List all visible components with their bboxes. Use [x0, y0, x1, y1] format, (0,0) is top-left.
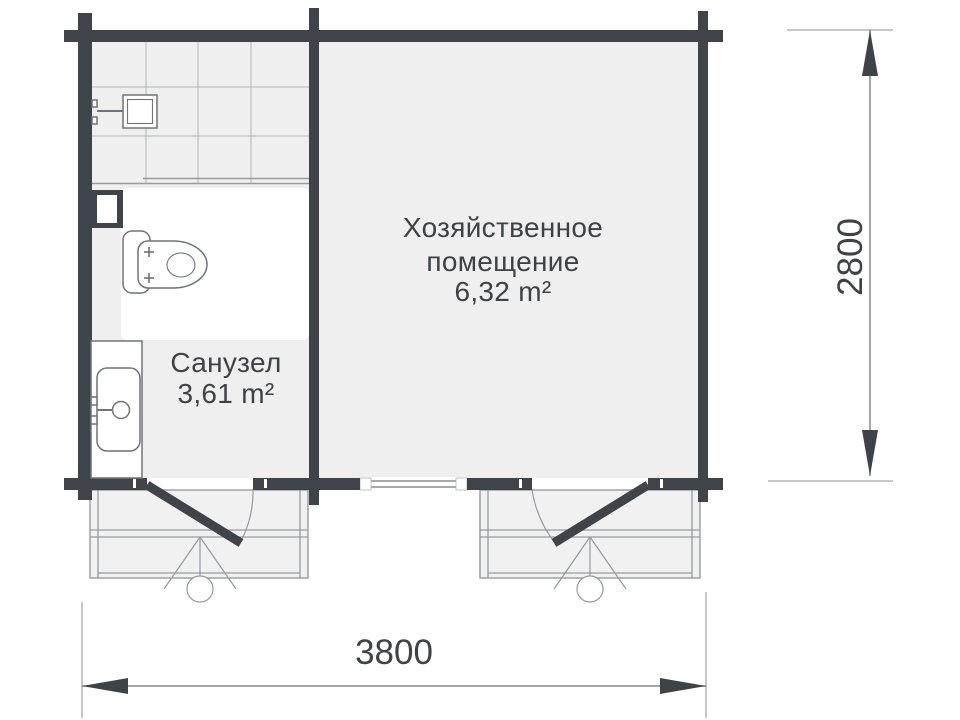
sink [91, 341, 142, 478]
width-dimension-label: 3800 [355, 633, 433, 672]
room-label-bathroom: Санузел 3,61 m² [170, 347, 281, 409]
interior-wall [309, 8, 319, 505]
arrow-up-icon [862, 30, 878, 76]
dimension-height: 2800 [768, 30, 893, 481]
floor-plan-page: Хозяйственное помещение 6,32 m² Санузел … [0, 0, 960, 720]
height-dimension-label: 2800 [831, 218, 870, 296]
right-wall [698, 11, 708, 502]
utility-area: 6,32 m² [454, 276, 551, 307]
arrow-down-icon [862, 430, 878, 476]
bottom-wall-c [467, 478, 532, 490]
arrow-right-icon [660, 678, 706, 694]
arrow-left-icon [82, 678, 128, 694]
floor-plan: Хозяйственное помещение 6,32 m² Санузел … [0, 0, 960, 720]
utility-name-line1: Хозяйственное [403, 212, 603, 243]
bottom-wall-b [253, 478, 360, 490]
wall-niche [92, 190, 123, 228]
left-wall [78, 13, 92, 500]
top-wall [64, 30, 723, 42]
utility-name-line2: помещение [426, 246, 579, 277]
bottom-wall-d [648, 478, 723, 490]
window [360, 477, 467, 491]
dimension-width: 3800 [82, 592, 706, 718]
bathroom-name: Санузел [170, 347, 281, 378]
bathroom-area: 3,61 m² [177, 378, 274, 409]
porch-left [90, 490, 308, 578]
